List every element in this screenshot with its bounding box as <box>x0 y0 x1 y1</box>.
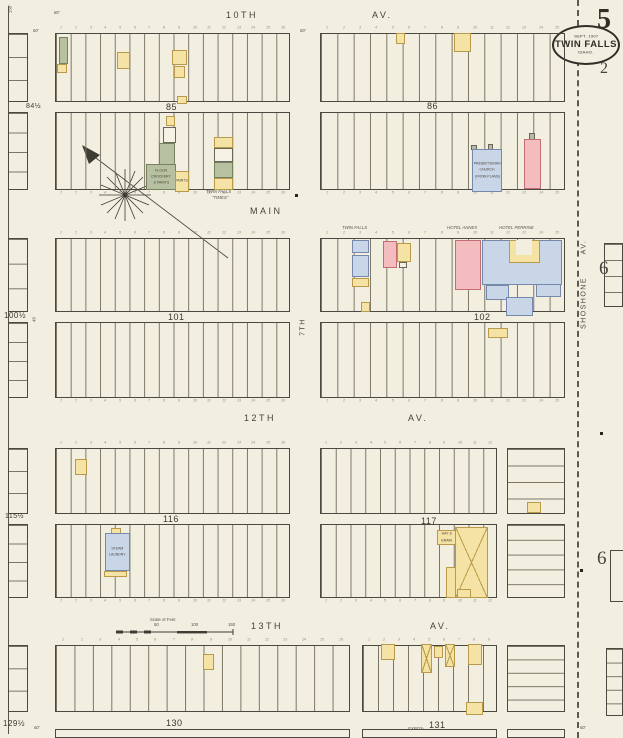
map-note: 150' <box>8 5 12 13</box>
building <box>421 644 432 673</box>
lot-number: 2 <box>383 638 385 642</box>
lot-number: 1 <box>60 26 62 30</box>
lot-number: 3 <box>359 231 361 235</box>
lot-number: 11 <box>207 26 211 30</box>
lot-number: 2 <box>343 191 345 195</box>
lot-number: 7 <box>424 26 426 30</box>
building-label: (FROM PLANS) <box>475 175 500 179</box>
lot-number: 15 <box>555 231 559 235</box>
lot-number: 4 <box>375 231 377 235</box>
building <box>536 284 561 297</box>
building <box>506 297 533 316</box>
lot-number: 3 <box>99 638 101 642</box>
building <box>163 127 176 143</box>
lot-number: 8 <box>163 26 165 30</box>
lot-number: 14 <box>251 26 255 30</box>
building <box>75 459 87 475</box>
map-note: TWIN FALLS <box>342 226 367 230</box>
lot-number: 2 <box>343 26 345 30</box>
lot-number: 8 <box>441 231 443 235</box>
marker-dot <box>600 432 603 435</box>
city-block <box>320 33 565 102</box>
lot-number: 1 <box>325 441 327 445</box>
lot-number: 2 <box>81 638 83 642</box>
adjacent-sheet-number: 6 <box>597 548 607 570</box>
lot-number: 9 <box>210 638 212 642</box>
building: HAY &GRAIN <box>437 530 456 545</box>
lot-number: 13 <box>237 231 241 235</box>
lot-number: 16 <box>281 231 285 235</box>
lot-number: 9 <box>178 599 180 603</box>
lot-number: 14 <box>539 231 543 235</box>
map-note: 60' <box>34 726 40 730</box>
lot-number: 15 <box>555 26 559 30</box>
building <box>352 255 369 277</box>
lot-number: 12 <box>222 399 226 403</box>
lot-number: 11 <box>473 599 477 603</box>
lot-number: 14 <box>251 441 255 445</box>
lot-number: 4 <box>375 26 377 30</box>
building-label: LAUNDRY <box>109 553 126 557</box>
lot-number: 10 <box>193 441 197 445</box>
lot-number: 13 <box>237 191 241 195</box>
lot-number: 6 <box>408 26 410 30</box>
building <box>352 240 369 253</box>
lot-number: 12 <box>265 638 269 642</box>
lot-number: 7 <box>173 638 175 642</box>
lot-number: 3 <box>398 638 400 642</box>
building <box>397 243 411 262</box>
lot-number: 1 <box>62 638 64 642</box>
lot-number: 5 <box>119 399 121 403</box>
lot-number: 13 <box>237 399 241 403</box>
street-label: 12TH <box>244 413 276 423</box>
lot-number: 3 <box>90 191 92 195</box>
scale-title: Scale of Feet <box>150 618 175 622</box>
lot-number: 9 <box>178 399 180 403</box>
lot-number: 3 <box>355 441 357 445</box>
building <box>352 278 369 287</box>
lot-number: 5 <box>428 638 430 642</box>
lot-number: 5 <box>384 441 386 445</box>
lot-number: 8 <box>163 441 165 445</box>
lot-number: 4 <box>370 441 372 445</box>
city-block <box>55 238 290 312</box>
lot-number: 11 <box>207 399 211 403</box>
building <box>104 571 127 577</box>
lot-number: 9 <box>457 26 459 30</box>
lot-number: 8 <box>163 191 165 195</box>
city-block <box>507 645 565 712</box>
lot-number: 5 <box>392 399 394 403</box>
building <box>466 702 483 715</box>
lot-number: 9 <box>457 399 459 403</box>
lot-number: 2 <box>340 441 342 445</box>
building <box>381 644 395 660</box>
lot-number: 15 <box>266 231 270 235</box>
scale-bar <box>116 628 236 636</box>
lot-number: 9 <box>488 638 490 642</box>
lot-number: 7 <box>148 399 150 403</box>
city-block <box>8 112 28 190</box>
city-block <box>8 448 28 514</box>
lot-number: 6 <box>134 26 136 30</box>
block-number: 100½ <box>4 311 26 320</box>
block-number: 102 <box>474 312 491 322</box>
city-block <box>55 322 290 398</box>
lot-number: 1 <box>60 399 62 403</box>
building <box>117 52 130 69</box>
lot-number: 11 <box>473 441 477 445</box>
lot-number: 10 <box>473 399 477 403</box>
map-note: EXPOS- <box>408 727 424 731</box>
lot-number: 14 <box>251 231 255 235</box>
lot-number: 3 <box>90 26 92 30</box>
building <box>361 302 370 312</box>
building <box>457 589 471 598</box>
lot-number: 6 <box>408 399 410 403</box>
lot-number: 4 <box>413 638 415 642</box>
building: PRESBYTERIANCHURCH(FROM PLANS) <box>472 149 502 192</box>
city-block <box>320 322 565 398</box>
lot-number: 5 <box>392 191 394 195</box>
lot-number: 1 <box>368 638 370 642</box>
lot-number: 11 <box>490 399 494 403</box>
lot-number: 5 <box>119 231 121 235</box>
lot-number: 3 <box>90 231 92 235</box>
lot-number: 3 <box>359 191 361 195</box>
lot-number: 14 <box>539 191 543 195</box>
building-label: CROCKERY <box>151 175 171 179</box>
lot-number: 12 <box>222 231 226 235</box>
lot-number: 3 <box>359 26 361 30</box>
street-label: AV. <box>581 240 588 255</box>
building <box>159 143 175 165</box>
lot-number: 13 <box>522 231 526 235</box>
building <box>203 654 214 670</box>
lot-number: 9 <box>457 231 459 235</box>
street-label: 13TH <box>251 621 283 631</box>
lot-number: 12 <box>222 26 226 30</box>
lot-number: 11 <box>207 599 211 603</box>
block-number: 129½ <box>3 719 25 728</box>
lot-number: 10 <box>473 26 477 30</box>
building <box>214 137 233 148</box>
lot-number: 10 <box>458 441 462 445</box>
scale-tick: 100 <box>191 623 198 627</box>
lot-number: 4 <box>375 399 377 403</box>
building <box>174 66 185 78</box>
city-block <box>362 729 497 738</box>
building <box>527 502 541 513</box>
scale-tick: 50 <box>154 623 159 627</box>
block-number: 85 <box>166 102 177 112</box>
lot-number: 1 <box>326 399 328 403</box>
lot-number: 2 <box>75 26 77 30</box>
lot-number: 7 <box>148 441 150 445</box>
map-note: TWIN FALLS <box>206 190 231 194</box>
lot-number: 8 <box>191 638 193 642</box>
marker-dot <box>295 194 298 197</box>
lot-number: 5 <box>136 638 138 642</box>
lot-number: 9 <box>178 231 180 235</box>
lot-number: 10 <box>193 26 197 30</box>
lot-number: 7 <box>424 191 426 195</box>
lot-number: 4 <box>104 26 106 30</box>
city-block <box>8 524 28 598</box>
lot-number: 15 <box>555 399 559 403</box>
lot-number: 6 <box>408 231 410 235</box>
lot-number: 2 <box>343 399 345 403</box>
city-block <box>507 524 565 598</box>
lot-number: 2 <box>75 441 77 445</box>
building-label: PRESBYTERIAN <box>474 162 501 166</box>
lot-number: 1 <box>60 599 62 603</box>
building <box>445 644 455 667</box>
lot-number: 7 <box>414 599 416 603</box>
lot-number: 5 <box>119 26 121 30</box>
building <box>59 37 68 64</box>
block-number: 84½ <box>26 103 41 110</box>
lot-number: 6 <box>134 599 136 603</box>
lot-number: 15 <box>320 638 324 642</box>
building-label: STEAM <box>111 547 123 551</box>
lot-number: 5 <box>119 441 121 445</box>
building <box>214 178 233 190</box>
lot-number: 2 <box>75 191 77 195</box>
lot-number: 6 <box>408 191 410 195</box>
street-label: 10TH <box>226 10 258 20</box>
lot-number: 11 <box>207 231 211 235</box>
lot-number: 10 <box>458 599 462 603</box>
lot-number: 14 <box>251 599 255 603</box>
city-block <box>606 648 623 716</box>
lot-number: 13 <box>522 26 526 30</box>
lot-number: 9 <box>443 441 445 445</box>
street-label: AV. <box>430 621 451 631</box>
lot-number: 10 <box>193 191 197 195</box>
map-note: HOTEL PERRINE <box>499 226 534 230</box>
lot-number: 3 <box>90 441 92 445</box>
block-number: 116 <box>163 514 179 524</box>
lot-number: 7 <box>424 231 426 235</box>
lot-number: 1 <box>326 191 328 195</box>
lot-number: 16 <box>281 399 285 403</box>
building <box>214 162 233 178</box>
lot-number: 13 <box>522 399 526 403</box>
lot-number: 3 <box>90 599 92 603</box>
building <box>516 240 532 255</box>
city-block <box>55 524 290 598</box>
lot-number: 5 <box>119 191 121 195</box>
building: STEAMLAUNDRY <box>105 533 130 571</box>
lot-number: 16 <box>281 191 285 195</box>
building <box>434 646 443 658</box>
lot-number: 2 <box>75 399 77 403</box>
lot-number: 1 <box>326 26 328 30</box>
map-note: "TIMES" <box>212 196 228 200</box>
building <box>172 50 187 65</box>
city-block <box>55 448 290 514</box>
lot-number: 5 <box>119 599 121 603</box>
building-label: FLOUR <box>155 169 167 173</box>
lot-number: 8 <box>429 599 431 603</box>
city-block <box>8 238 28 312</box>
lot-number: 6 <box>134 191 136 195</box>
lot-number: 7 <box>458 638 460 642</box>
building <box>455 527 488 598</box>
building-label: GRAIN <box>441 539 452 543</box>
lot-number: 2 <box>343 231 345 235</box>
map-note: 49 <box>33 317 37 322</box>
building <box>396 33 405 44</box>
block-number: 117 <box>421 516 437 526</box>
street-label: 7TH <box>300 318 307 336</box>
lot-number: 6 <box>134 441 136 445</box>
lot-number: 11 <box>490 231 494 235</box>
city-block <box>8 645 28 712</box>
city-block <box>8 322 28 398</box>
lot-number: 3 <box>359 399 361 403</box>
lot-number: 13 <box>237 599 241 603</box>
lot-number: 14 <box>251 191 255 195</box>
lot-number: 13 <box>522 191 526 195</box>
lot-number: 9 <box>178 26 180 30</box>
lot-number: 5 <box>392 26 394 30</box>
lot-number: 12 <box>506 191 510 195</box>
map-note: HOTEL ANNEX <box>447 226 477 230</box>
lot-number: 1 <box>325 599 327 603</box>
lot-number: 4 <box>104 599 106 603</box>
lot-number: 8 <box>163 399 165 403</box>
lot-number: 12 <box>506 399 510 403</box>
lot-number: 10 <box>193 599 197 603</box>
lot-number: 8 <box>473 638 475 642</box>
building <box>399 262 407 268</box>
lot-number: 16 <box>339 638 343 642</box>
lot-number: 15 <box>555 191 559 195</box>
lot-number: 15 <box>266 399 270 403</box>
map-note: 60' <box>300 29 306 33</box>
marker-dot <box>580 569 583 572</box>
lot-number: 9 <box>178 441 180 445</box>
lot-number: 6 <box>399 599 401 603</box>
lot-number: 6 <box>134 231 136 235</box>
lot-number: 3 <box>355 599 357 603</box>
lot-number: 2 <box>75 599 77 603</box>
lot-number: 6 <box>443 638 445 642</box>
lot-number: 12 <box>488 441 492 445</box>
lot-number: 11 <box>247 638 251 642</box>
lot-number: 4 <box>104 441 106 445</box>
street-label: SHOSHONE <box>581 277 588 329</box>
building-label: HAY & <box>441 533 451 537</box>
lot-number: 8 <box>163 599 165 603</box>
scale-tick: 150 <box>228 623 235 627</box>
lot-number: 3 <box>90 399 92 403</box>
lot-number: 2 <box>75 231 77 235</box>
street-label: AV. <box>372 10 393 20</box>
city-block <box>604 243 623 307</box>
lot-number: 16 <box>281 441 285 445</box>
lot-number: 10 <box>193 399 197 403</box>
lot-number: 6 <box>154 638 156 642</box>
building: PAINTS <box>175 171 189 192</box>
building-label: PAINTS <box>176 180 188 184</box>
city-block <box>610 550 623 602</box>
lot-number: 14 <box>539 399 543 403</box>
city-block <box>55 33 290 102</box>
map-note: 60' <box>33 29 39 33</box>
lot-number: 9 <box>443 599 445 603</box>
building <box>166 116 175 126</box>
building <box>214 148 233 162</box>
seal-date: SEPT. 1907 <box>574 35 598 39</box>
lot-number: 13 <box>237 26 241 30</box>
building: FLOURCROCKERY& PAINTS <box>146 164 176 190</box>
lot-number: 9 <box>457 191 459 195</box>
lot-number: 12 <box>488 599 492 603</box>
lot-number: 13 <box>237 441 241 445</box>
sanborn-map-sheet: 5 SEPT. 1907 TWIN FALLS IDAHO. 2 6 6 <box>0 0 623 738</box>
block-number: 86 <box>427 101 438 111</box>
city-block <box>320 448 497 514</box>
lot-number: 4 <box>375 191 377 195</box>
building <box>57 64 67 73</box>
lot-number: 11 <box>490 26 494 30</box>
map-note: 60' <box>580 726 586 730</box>
lot-number: 16 <box>281 599 285 603</box>
lot-number: 8 <box>429 441 431 445</box>
building-label: CHURCH <box>479 169 494 173</box>
building <box>454 33 471 52</box>
lot-number: 2 <box>340 599 342 603</box>
lot-number: 13 <box>283 638 287 642</box>
block-number: 131 <box>429 720 446 730</box>
match-line <box>577 0 579 738</box>
lot-number: 7 <box>414 441 416 445</box>
lot-number: 11 <box>207 441 211 445</box>
building <box>383 241 397 268</box>
lot-number: 1 <box>60 441 62 445</box>
lot-number: 14 <box>251 399 255 403</box>
building <box>446 567 456 598</box>
lot-number: 12 <box>222 599 226 603</box>
lot-number: 4 <box>104 399 106 403</box>
lot-number: 12 <box>506 26 510 30</box>
lot-number: 7 <box>424 399 426 403</box>
lot-number: 10 <box>228 638 232 642</box>
seal-state: IDAHO. <box>578 51 594 55</box>
lot-number: 12 <box>222 441 226 445</box>
block-number: 130 <box>166 718 183 728</box>
lot-number: 12 <box>506 231 510 235</box>
lot-number: 7 <box>148 26 150 30</box>
building <box>468 644 482 665</box>
city-block <box>55 729 350 738</box>
lot-number: 6 <box>399 441 401 445</box>
lot-number: 1 <box>326 231 328 235</box>
block-number: 101 <box>168 312 185 322</box>
street-label: MAIN <box>250 206 283 216</box>
lot-number: 16 <box>281 26 285 30</box>
street-label: AV. <box>408 413 429 423</box>
building <box>455 240 481 290</box>
lot-number: 14 <box>539 26 543 30</box>
lot-number: 15 <box>266 26 270 30</box>
lot-number: 5 <box>384 599 386 603</box>
block-number: 115½ <box>5 513 24 520</box>
